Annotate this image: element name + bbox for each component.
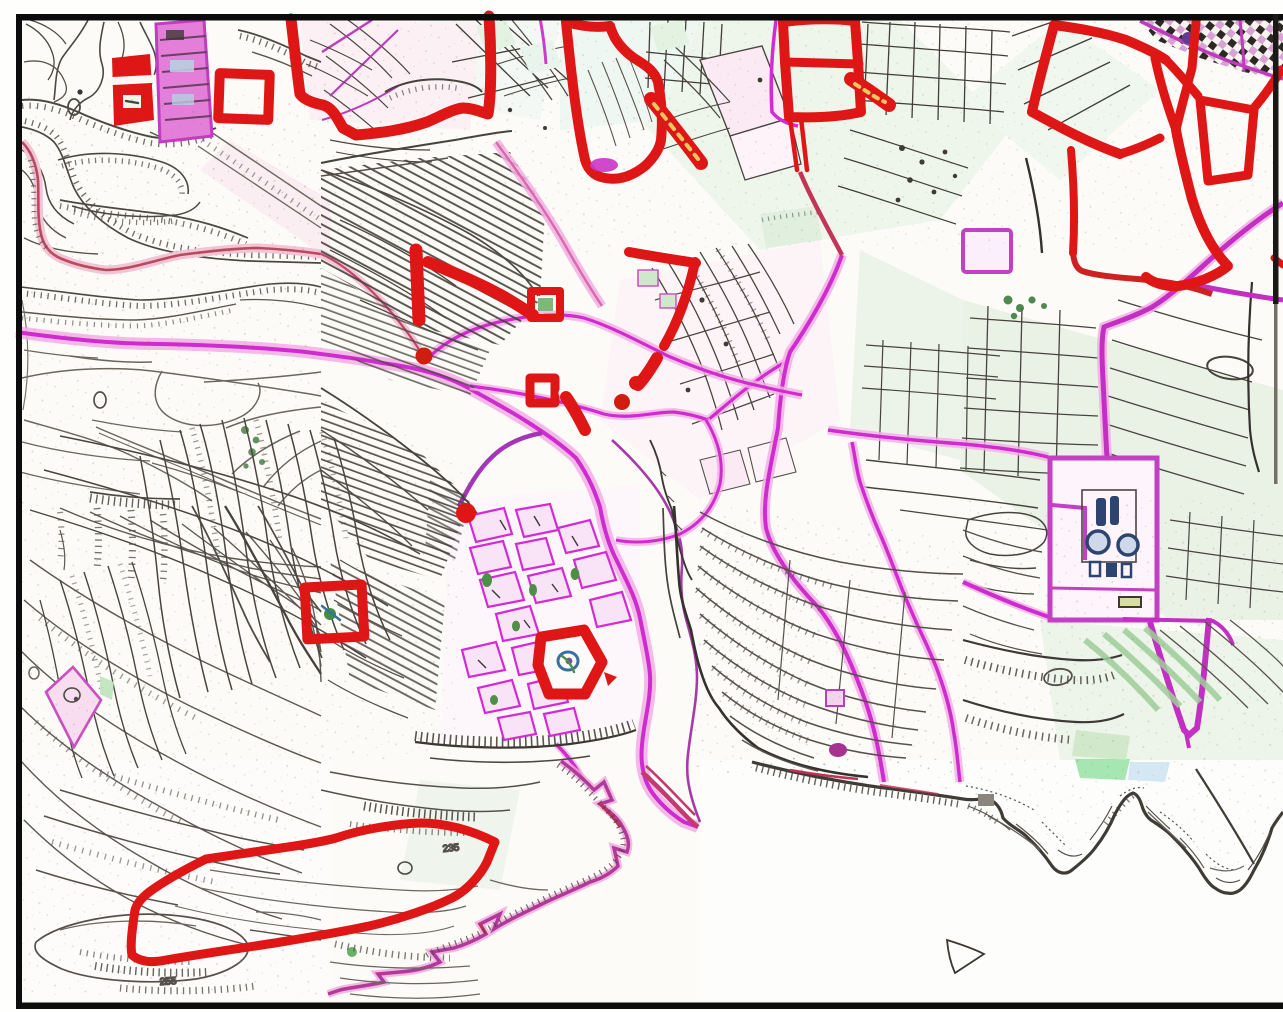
svg-text:235: 235 <box>442 842 460 855</box>
